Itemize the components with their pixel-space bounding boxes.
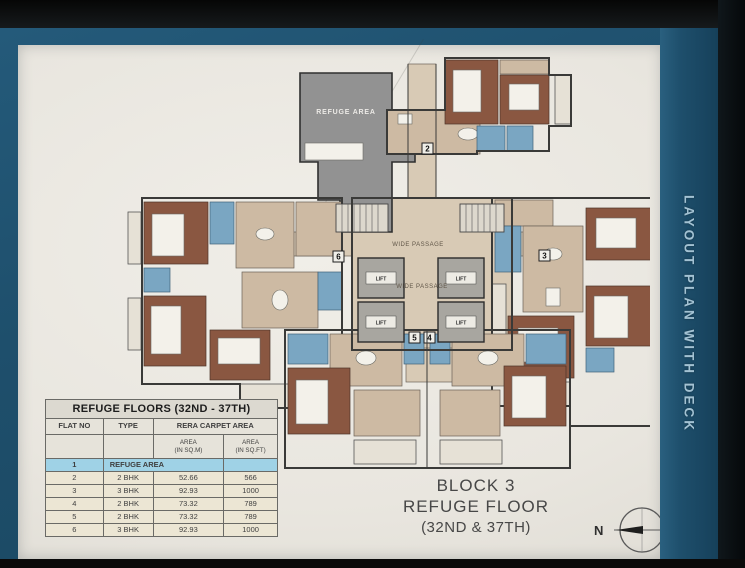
lift-2-label: LIFT xyxy=(376,321,387,327)
sub-empty-1 xyxy=(46,435,104,459)
table-row: 6 3 BHK 92.93 1000 xyxy=(46,524,278,537)
floor-plan-page: REFUGE AREA 2 xyxy=(18,45,662,559)
table-title: REFUGE FLOORS (32ND - 37TH) xyxy=(46,400,278,419)
flat-4-marker: 4 xyxy=(427,334,432,343)
sub-empty-2 xyxy=(103,435,153,459)
lift-1-label: LIFT xyxy=(376,277,387,283)
flat-5-unit: 5 xyxy=(288,332,424,464)
flat-5-marker: 5 xyxy=(412,334,417,343)
side-band-label: LAYOUT PLAN WITH DECK xyxy=(682,195,697,433)
refuge-floors-table: REFUGE FLOORS (32ND - 37TH) FLAT NO TYPE… xyxy=(45,399,278,537)
side-band: LAYOUT PLAN WITH DECK xyxy=(660,28,718,559)
table-row: 4 2 BHK 73.32 789 xyxy=(46,498,278,511)
flat-6-marker: 6 xyxy=(336,253,341,262)
stair-left xyxy=(336,204,388,232)
flat-2-marker: 2 xyxy=(425,145,430,154)
table-row-refuge: 1 REFUGE AREA xyxy=(46,459,278,472)
passage-label-top: WIDE PASSAGE xyxy=(392,242,444,248)
col-flat-no: FLAT NO xyxy=(46,419,104,435)
col-type: TYPE xyxy=(103,419,153,435)
sub-area-sqm: AREA (IN SQ.M) xyxy=(153,435,224,459)
compass-n-label: N xyxy=(594,523,603,538)
refuge-area-label: REFUGE AREA xyxy=(316,109,376,116)
table-row: 3 3 BHK 92.93 1000 xyxy=(46,485,278,498)
table-row: 5 2 BHK 73.32 789 xyxy=(46,511,278,524)
screen-top-bezel xyxy=(0,0,745,28)
stair-right xyxy=(460,204,504,232)
lift-4-label: LIFT xyxy=(456,321,467,327)
lift-3-label: LIFT xyxy=(456,277,467,283)
flat-3-marker: 3 xyxy=(542,252,547,261)
flat-4-unit: 4 xyxy=(424,332,566,464)
passage-label-lobby: WIDE PASSAGE xyxy=(396,284,448,290)
brochure-frame: REFUGE AREA 2 xyxy=(0,28,718,559)
table-row: 2 2 BHK 52.66 566 xyxy=(46,472,278,485)
screen-right-bezel xyxy=(718,0,745,559)
col-rera-carpet-area: RERA CARPET AREA xyxy=(153,419,277,435)
sub-area-sqft: AREA (IN SQ.FT) xyxy=(224,435,278,459)
